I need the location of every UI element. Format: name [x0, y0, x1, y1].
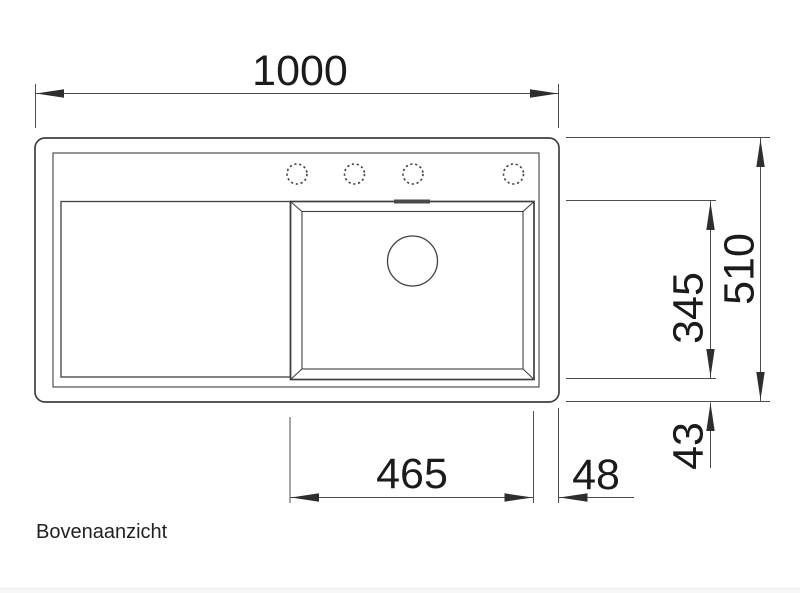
bowl-bevel-top-left: [291, 202, 303, 212]
bowl-outer-edge: [291, 202, 535, 380]
drainboard: [61, 202, 291, 378]
dimension-rim-offset-right: 48: [559, 408, 635, 503]
bowl-bevel-bottom-right: [523, 369, 534, 380]
dimension-overall-width: 1000: [36, 47, 559, 128]
faucet-hole-2: [345, 164, 365, 184]
sink-outer-edge: [35, 138, 559, 402]
drain-hole: [388, 236, 438, 286]
arrowhead-right: [505, 493, 533, 501]
faucet-holes: [287, 164, 524, 184]
arrowhead-bottom: [756, 372, 764, 400]
faucet-hole-4: [504, 164, 524, 184]
arrowhead-top: [756, 139, 764, 167]
dimension-label-overall-width: 1000: [252, 47, 348, 95]
arrowhead-left: [291, 493, 319, 501]
sink-outline: [35, 138, 559, 402]
dimension-label-bowl-width: 465: [376, 450, 448, 498]
dimension-bowl-depth: 345: [566, 201, 716, 379]
dimension-bowl-width: 465: [290, 411, 534, 503]
overflow-slot: [394, 200, 430, 204]
dimension-label-rim-offset-bottom: 43: [665, 422, 713, 470]
main-bowl: [291, 200, 535, 380]
sink-rim-inner-edge: [53, 153, 539, 387]
bowl-bevel-top-right: [523, 202, 534, 212]
faucet-hole-3: [403, 164, 423, 184]
arrowhead-top: [706, 202, 714, 230]
view-caption: Bovenaanzicht: [36, 521, 168, 543]
dimension-label-bowl-depth: 345: [665, 272, 713, 344]
arrowhead-left: [36, 89, 64, 97]
arrowhead-bottom: [706, 349, 714, 377]
top-view-diagram: 1000 510 345 43: [0, 0, 800, 593]
arrowhead-right: [530, 89, 558, 97]
page-bottom-hairline: [0, 588, 800, 589]
dimension-label-rim-offset-right: 48: [572, 451, 620, 499]
dimension-overall-depth: 510: [566, 138, 770, 402]
bowl-inner-edge: [302, 212, 523, 370]
drainboard-surface: [61, 202, 291, 378]
sink-technical-drawing: 1000 510 345 43: [0, 0, 800, 593]
page-bottom-band: [0, 589, 800, 593]
dimension-rim-offset-bottom: 43: [665, 403, 715, 470]
dimension-label-overall-depth: 510: [716, 233, 764, 305]
bowl-bevel-bottom-left: [291, 369, 303, 380]
faucet-hole-1: [287, 164, 307, 184]
